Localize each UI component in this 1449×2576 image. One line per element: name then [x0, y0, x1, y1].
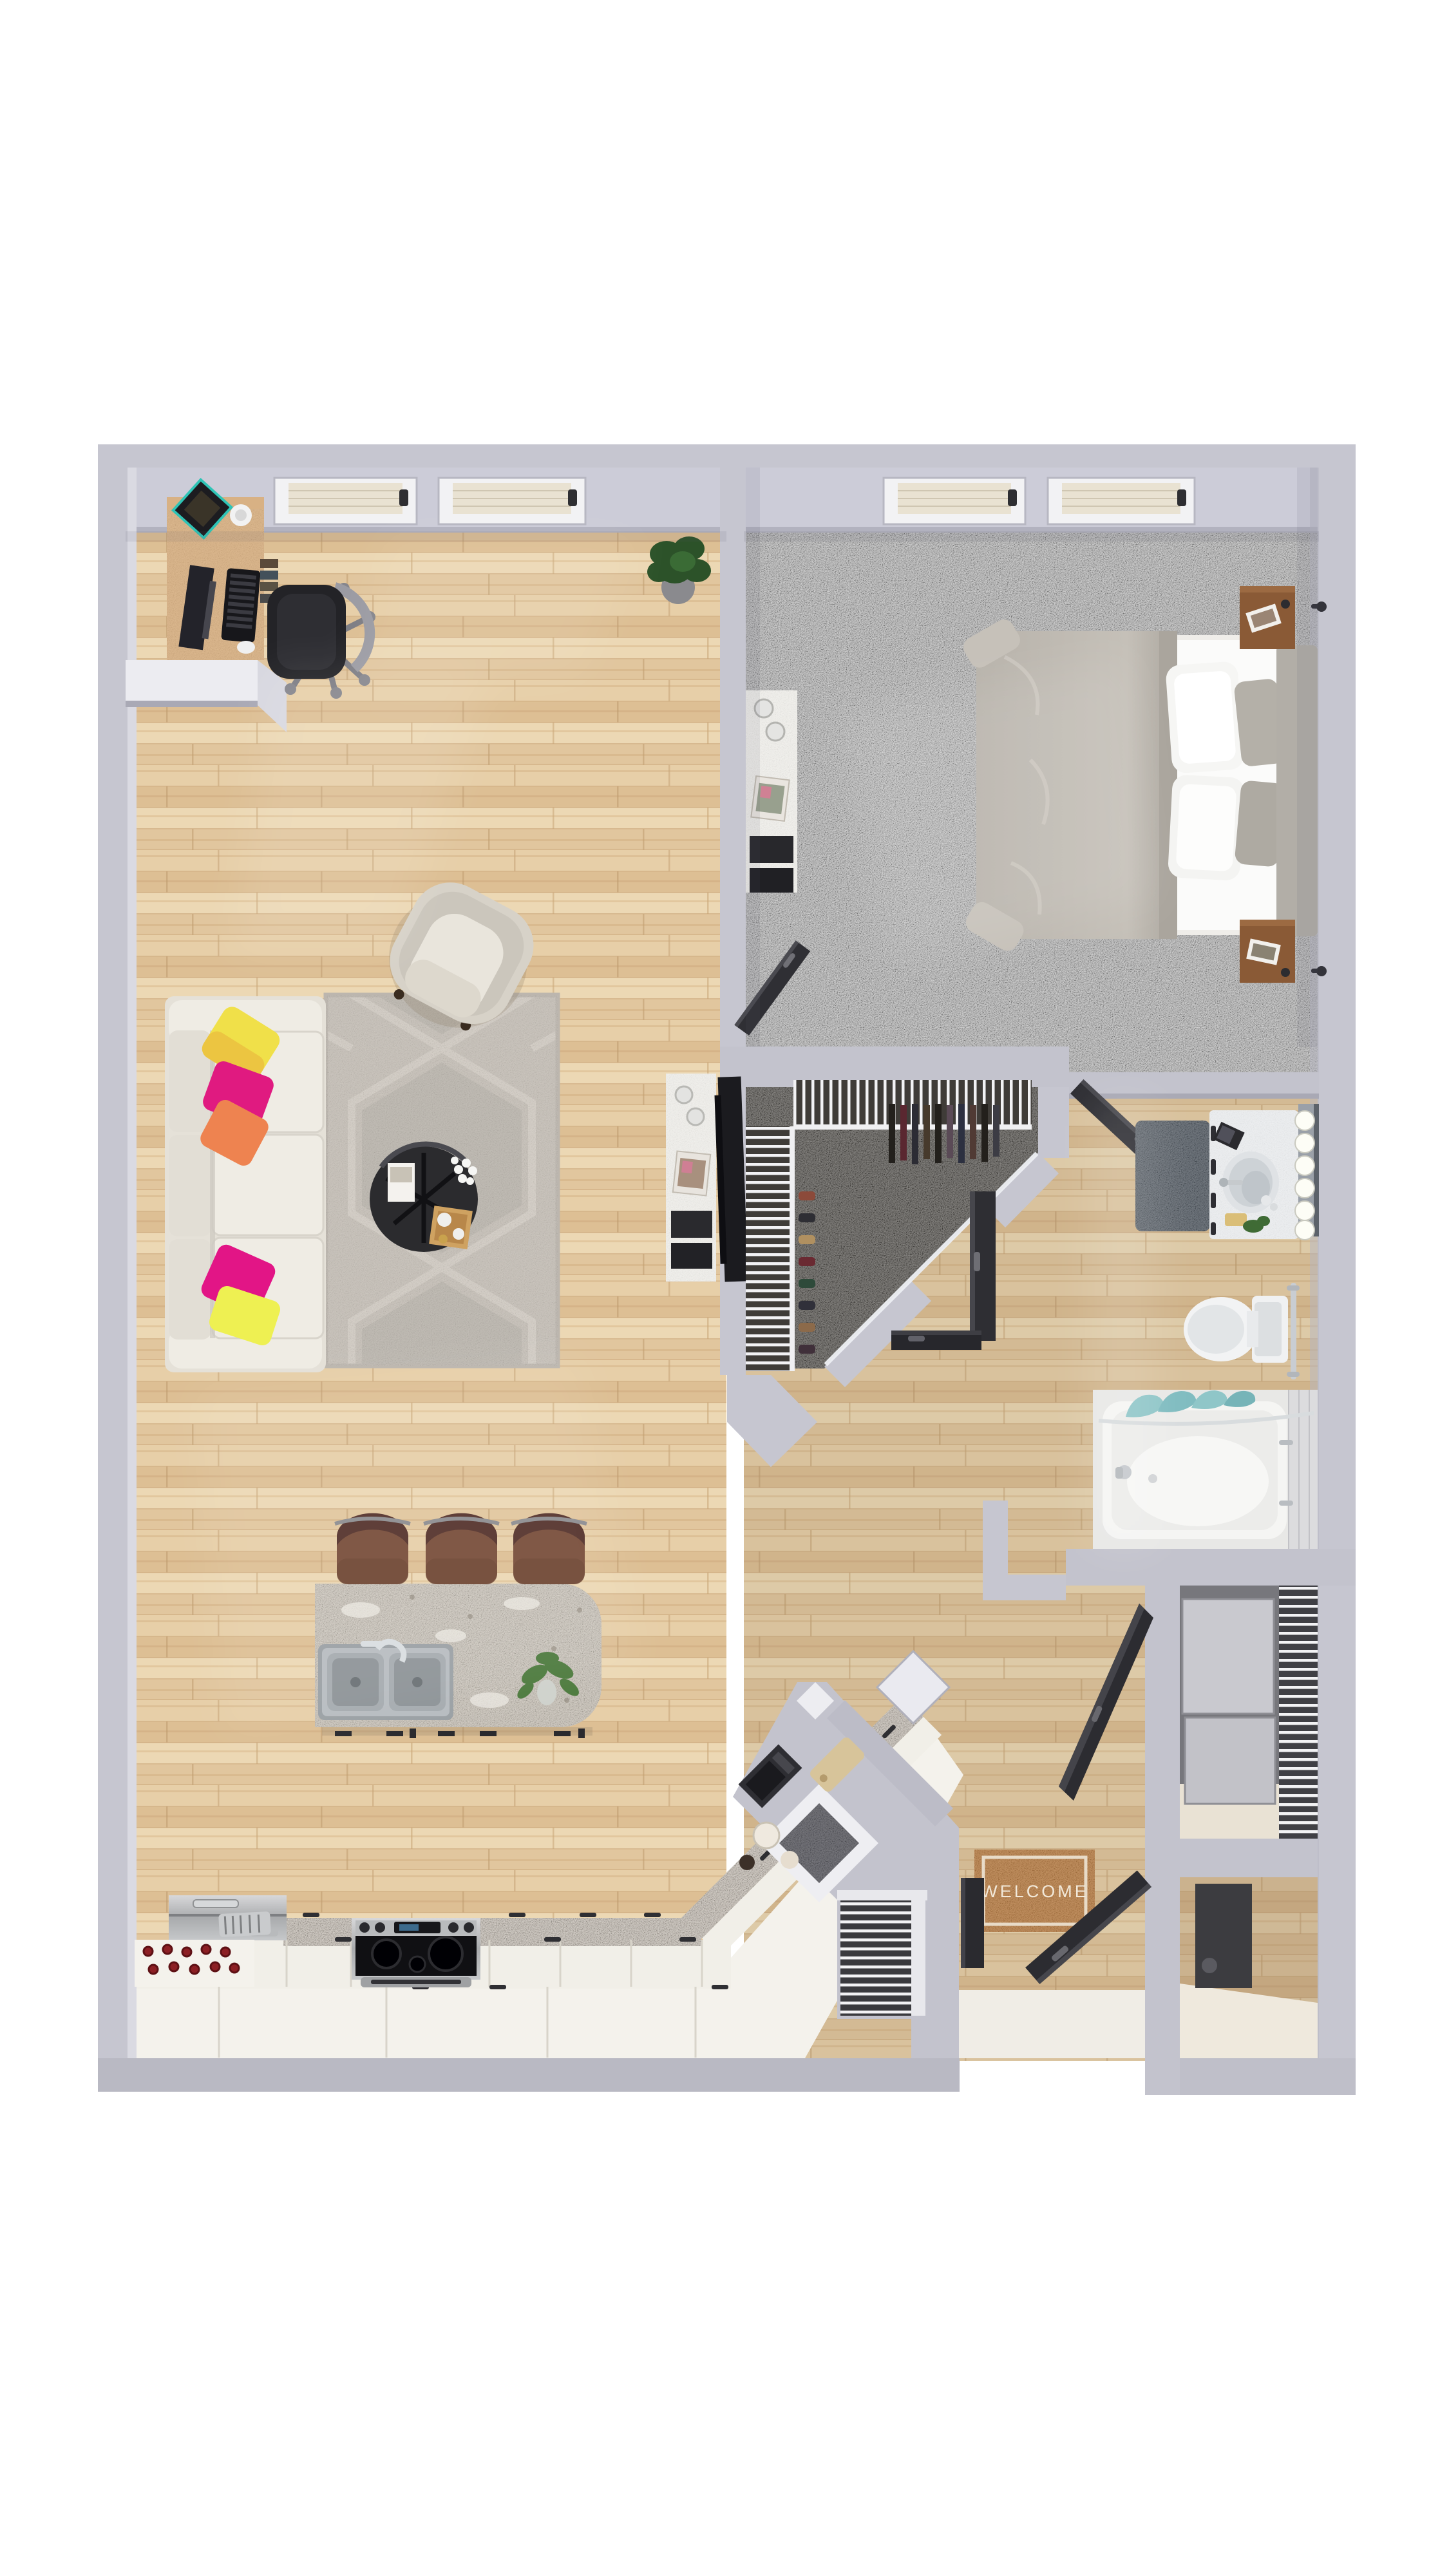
svg-text:WELCOME: WELCOME: [981, 1882, 1089, 1901]
